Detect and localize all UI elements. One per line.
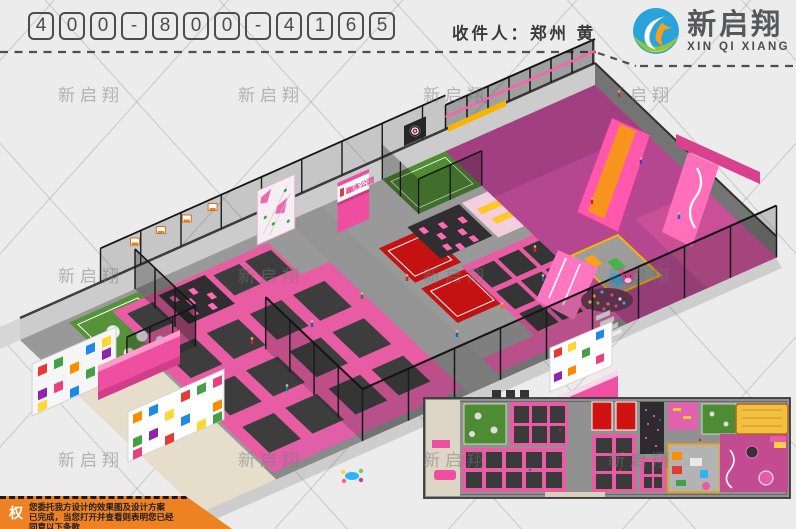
phone-digit-box: - <box>245 12 271 40</box>
watermark: 新启翔 <box>238 81 304 106</box>
reception-floor <box>74 359 276 513</box>
floor-zones <box>20 85 777 513</box>
front-desk <box>528 371 618 446</box>
slide-big <box>577 118 650 232</box>
phone-digit-box: 0 <box>183 12 209 40</box>
plan-airbag <box>668 402 698 430</box>
copyright-banner: 权 您委托我方设计的效果图及设计方案 已完成，当您打开并查看则表明您已经 同意以… <box>0 496 232 529</box>
slide-wavy <box>662 152 719 247</box>
climbing-wall <box>257 174 294 245</box>
people-figures <box>251 90 681 391</box>
park-sign-label: 蹦床公园 <box>346 175 374 196</box>
watermark: 新启翔 <box>58 262 124 287</box>
watermark: 新启翔 <box>608 81 674 106</box>
plan-entrance <box>426 400 460 496</box>
watermark: 新启翔 <box>238 262 304 287</box>
plan-trampoline-C <box>592 434 636 492</box>
render-3d-view: 蹦床公园 <box>0 0 796 529</box>
mosaic-wall-1 <box>32 327 116 416</box>
phone-digit-box: 6 <box>338 12 364 40</box>
pro-trampolines <box>461 233 609 336</box>
copyright-seal: 权 <box>0 499 29 523</box>
playground-floor <box>446 85 777 324</box>
foam-cube-pit <box>407 204 492 259</box>
phone-digit-box: 5 <box>369 12 395 40</box>
watermark: 新启翔 <box>423 81 489 106</box>
company-name: 新启翔 <box>687 11 790 40</box>
kids-table-1 <box>341 469 363 483</box>
toddler-area <box>572 235 660 296</box>
plan-dodgeball <box>592 402 636 430</box>
display-counter <box>98 330 180 400</box>
copyright-line-2: 已完成，当您打开并查看则表明您已经 <box>29 512 174 522</box>
back-trampoline-row <box>112 243 304 346</box>
slide-ballpit <box>536 250 598 320</box>
design-proof-sheet: 蹦床公园 <box>0 0 796 529</box>
plan-slide-yellow <box>736 404 788 434</box>
phone-digit-box: 1 <box>307 12 333 40</box>
watermark: 新启翔 <box>238 446 304 471</box>
dodgeball-courts <box>379 228 504 323</box>
phone-digit-box: 0 <box>90 12 116 40</box>
plan-toddler <box>668 444 720 492</box>
plan-playground <box>720 434 788 492</box>
phone-digit-box: 0 <box>214 12 240 40</box>
floor-plan-top-view <box>424 390 790 498</box>
sign-tower: 蹦床公园 <box>338 167 374 233</box>
ball-pit <box>581 288 633 312</box>
watermark: 新启翔 <box>608 262 674 287</box>
building-shadow <box>201 258 782 523</box>
plan-foam-pit <box>640 402 664 454</box>
right-wall <box>595 63 776 258</box>
kids-table-2 <box>425 420 447 434</box>
company-logo: 新启翔 XIN QI XIANG <box>631 7 790 57</box>
plan-trampoline-B <box>462 448 566 492</box>
phone-digit-box: 4 <box>276 12 302 40</box>
dart-turf-cage <box>382 151 482 214</box>
dart-cage-fence <box>382 144 482 214</box>
plan-trampoline-D <box>640 458 666 492</box>
foam-cube-pit-left <box>159 275 235 324</box>
plan-turf-2 <box>702 404 736 434</box>
company-logo-icon <box>631 7 681 57</box>
phone-digit-box: 8 <box>152 12 178 40</box>
copyright-line-1: 您委托我方设计的效果图及设计方案 <box>29 502 174 512</box>
back-wall <box>0 63 595 349</box>
trampoline-court <box>140 190 624 472</box>
stairs <box>596 310 622 339</box>
mosaic-wall-3 <box>550 322 612 392</box>
phone-digit-box: 4 <box>28 12 54 40</box>
back-fence <box>101 95 446 282</box>
phone-digit-box: 0 <box>59 12 85 40</box>
bubble-balls <box>107 326 165 359</box>
watermark: 新启翔 <box>58 446 124 471</box>
center-walkway <box>287 206 503 394</box>
reception-area <box>32 322 618 484</box>
potted-plant <box>486 452 499 471</box>
watermark: 新启翔 <box>608 446 674 471</box>
watermark: 新启翔 <box>423 262 489 287</box>
bubble-soccer-field <box>69 292 195 377</box>
sofas <box>452 413 492 459</box>
recipient-label: 收件人：郑州 黄 <box>452 20 596 44</box>
basketball-hoops <box>131 204 218 246</box>
airbag-zone <box>462 185 539 237</box>
dartboard <box>404 116 426 146</box>
copyright-line-3: 同意以下条款 <box>29 522 174 529</box>
watermark: 新启翔 <box>58 81 124 106</box>
bubble-cage-fence <box>127 249 196 377</box>
plan-trampoline-A <box>510 402 568 446</box>
plan-turf-1 <box>464 404 506 444</box>
company-name-en: XIN QI XIANG <box>687 42 790 54</box>
watermark: 新启翔 <box>423 446 489 471</box>
phone-digit-box: - <box>121 12 147 40</box>
phone-number: 4 0 0 - 8 0 0 - 4 1 6 5 <box>28 12 395 40</box>
mosaic-wall-2 <box>128 369 224 462</box>
front-fence <box>266 206 777 442</box>
playground-structure <box>446 39 761 339</box>
bear-statue <box>619 269 637 285</box>
